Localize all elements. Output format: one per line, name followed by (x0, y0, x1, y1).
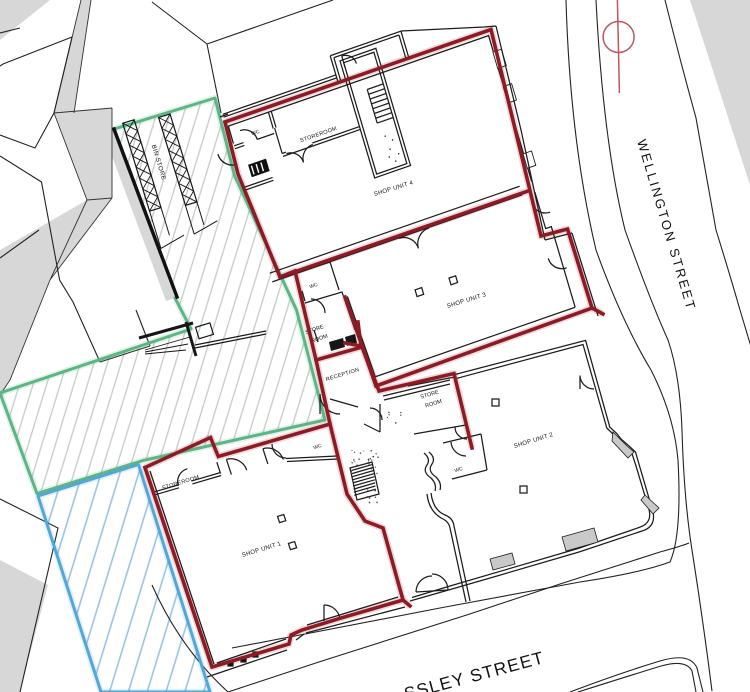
svg-text:WC: WC (251, 129, 261, 138)
svg-text:ROOM: ROOM (425, 399, 444, 410)
svg-text:SHOP UNIT 3: SHOP UNIT 3 (446, 292, 487, 310)
svg-text:SHOP UNIT 1: SHOP UNIT 1 (241, 541, 282, 559)
svg-text:WC: WC (454, 466, 464, 474)
svg-text:WELLINGTON STREET: WELLINGTON STREET (634, 138, 699, 313)
svg-text:WC: WC (313, 443, 323, 452)
svg-text:WC: WC (309, 282, 319, 291)
svg-text:STOREROOM: STOREROOM (299, 126, 338, 144)
svg-text:SSLEY STREET: SSLEY STREET (402, 647, 547, 692)
svg-text:RECEPTION: RECEPTION (325, 367, 360, 383)
svg-text:SHOP UNIT 2: SHOP UNIT 2 (513, 432, 554, 450)
svg-text:SHOP UNIT 4: SHOP UNIT 4 (373, 180, 414, 198)
